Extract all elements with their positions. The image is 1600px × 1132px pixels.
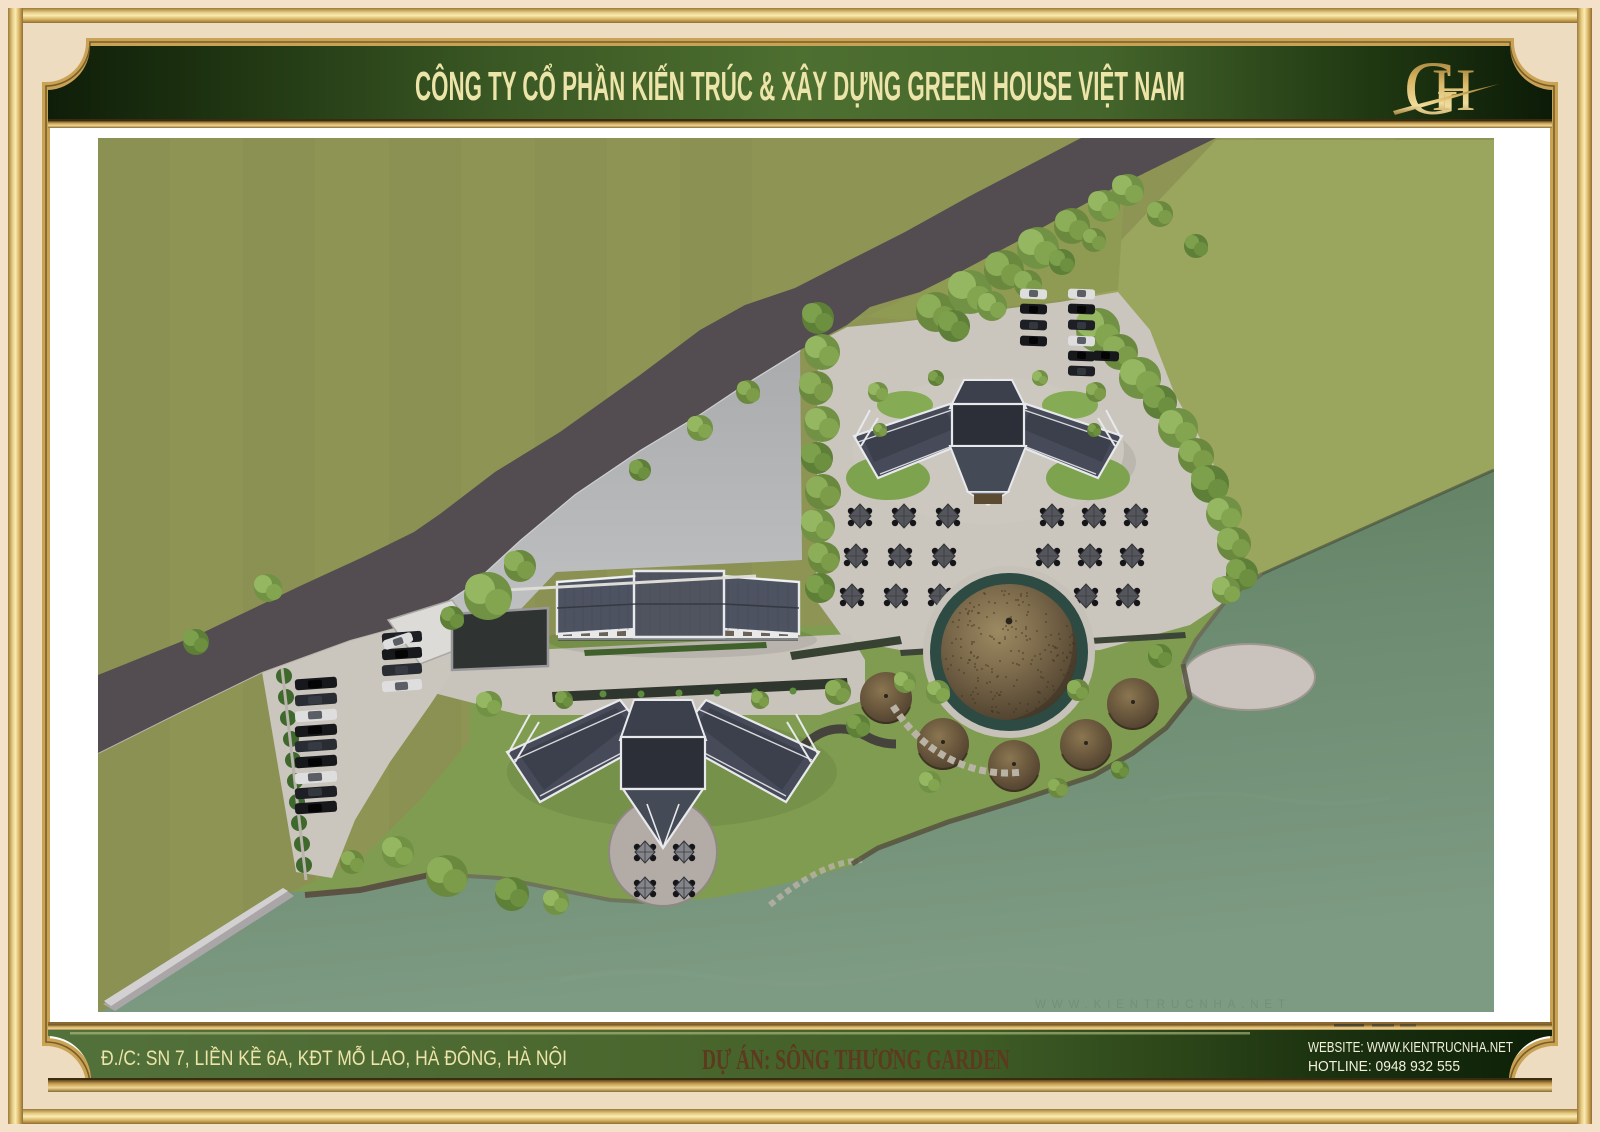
svg-text:WEBSITE: WWW.KIENTRUCNHA.NET: WEBSITE: WWW.KIENTRUCNHA.NET (1308, 1039, 1513, 1056)
svg-text:DỰ ÁN: SÔNG THƯƠNG GARDEN: DỰ ÁN: SÔNG THƯƠNG GARDEN (702, 1043, 1010, 1076)
svg-text:Đ./C: SN 7, LIỀN KỀ 6A, KĐT MỖ: Đ./C: SN 7, LIỀN KỀ 6A, KĐT MỖ LAO, HÀ Đ… (101, 1044, 567, 1070)
svg-text:CÔNG TY CỔ PHẦN KIẾN TRÚC & XÂ: CÔNG TY CỔ PHẦN KIẾN TRÚC & XÂY DỰNG GRE… (415, 62, 1185, 109)
svg-text:HOTLINE: 0948 932 555: HOTLINE: 0948 932 555 (1308, 1058, 1460, 1075)
svg-text:H: H (1432, 57, 1475, 123)
